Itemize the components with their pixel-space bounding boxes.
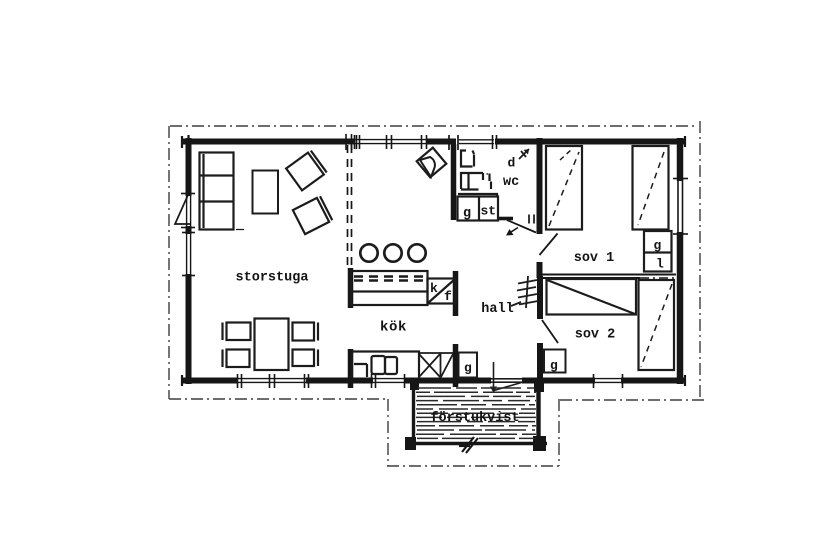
svg-text:st: st <box>481 204 497 219</box>
svg-text:f: f <box>444 289 452 304</box>
svg-text:sov 1: sov 1 <box>574 251 615 266</box>
svg-text:k: k <box>430 281 438 296</box>
svg-text:kök: kök <box>380 320 407 336</box>
svg-text:sov 2: sov 2 <box>575 328 616 343</box>
svg-text:förstukvist: förstukvist <box>430 411 519 426</box>
svg-text:l: l <box>656 257 664 272</box>
svg-text:hall: hall <box>481 302 513 317</box>
svg-text:d: d <box>508 156 516 171</box>
svg-text:g: g <box>464 361 472 376</box>
svg-text:g: g <box>654 238 662 253</box>
svg-text:g: g <box>463 207 471 222</box>
svg-text:storstuga: storstuga <box>236 271 309 286</box>
svg-text:g: g <box>550 358 558 373</box>
svg-text:wc: wc <box>503 175 519 190</box>
